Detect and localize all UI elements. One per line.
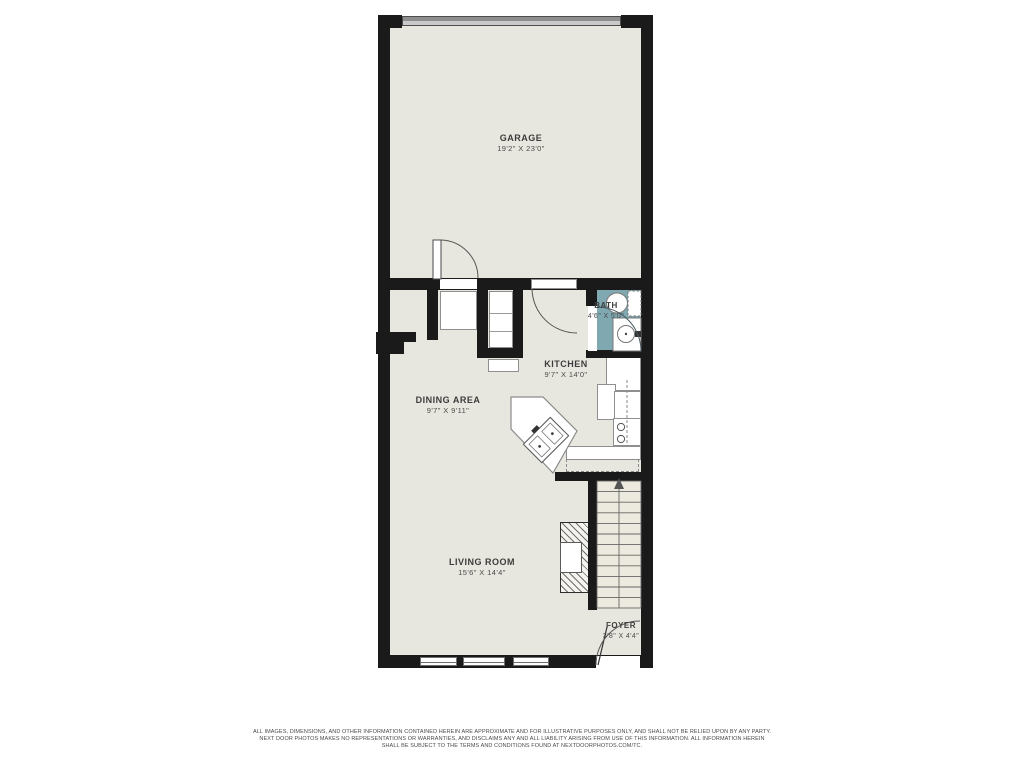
living-room-name: LIVING ROOM xyxy=(449,556,515,568)
disclaimer-line-2: NEXT DOOR PHOTOS MAKES NO REPRESENTATION… xyxy=(0,736,1024,743)
window-icon xyxy=(463,657,505,666)
wall-east xyxy=(641,15,653,668)
foyer-name: FOYER xyxy=(603,620,639,632)
foyer-door-opening xyxy=(596,656,640,668)
upper-cabinet-dashed xyxy=(566,459,639,472)
kitchen-counter-south xyxy=(566,446,641,460)
disclaimer-text: ALL IMAGES, DIMENSIONS, AND OTHER INFORM… xyxy=(0,729,1024,750)
fireplace-box xyxy=(560,542,582,573)
garage-name: GARAGE xyxy=(497,132,545,144)
pantry-closet xyxy=(489,291,513,348)
pantry-shelf-line xyxy=(490,331,512,332)
wall-bath-south xyxy=(586,350,653,358)
bath-label: BATH 4'6" X 5'0" xyxy=(588,300,624,322)
living-room-label: LIVING ROOM 15'6" X 14'4" xyxy=(449,556,515,578)
wall-pantry-west xyxy=(477,288,488,350)
window-icon xyxy=(420,657,457,666)
kitchen-cabinet xyxy=(488,359,519,372)
wall-kitchen-south xyxy=(555,472,653,481)
floor-plan-page: GARAGE 19'2" X 23'0" DINING AREA 9'7" X … xyxy=(0,0,1024,768)
kitchen-counter-east xyxy=(614,391,641,419)
foyer-dims: 3'8" X 4'4" xyxy=(603,632,639,642)
wall-vestibule-west xyxy=(427,288,438,340)
disclaimer-line-1: ALL IMAGES, DIMENSIONS, AND OTHER INFORM… xyxy=(0,729,1024,736)
entry-landing-closet xyxy=(440,291,477,330)
garage-label: GARAGE 19'2" X 23'0" xyxy=(497,132,545,154)
foyer-label: FOYER 3'8" X 4'4" xyxy=(603,620,639,642)
kitchen-label: KITCHEN 9'7" X 14'0" xyxy=(544,358,588,380)
kitchen-name: KITCHEN xyxy=(544,358,588,370)
pantry-shelf-line xyxy=(490,313,512,314)
wall-stairs-west xyxy=(588,481,597,610)
bath-dims: 4'6" X 5'0" xyxy=(588,312,624,322)
kitchen-dims: 9'7" X 14'0" xyxy=(544,370,588,380)
dining-name: DINING AREA xyxy=(416,394,481,406)
wall-closet-south xyxy=(390,332,416,342)
bath-name: BATH xyxy=(588,300,624,312)
range-icon xyxy=(613,418,641,446)
dining-dims: 9'7" X 9'11" xyxy=(416,406,481,416)
wall-pantry-east xyxy=(513,288,523,350)
dining-label: DINING AREA 9'7" X 9'11" xyxy=(416,394,481,416)
garage-door-opening xyxy=(440,279,477,289)
window-icon xyxy=(513,657,549,666)
kitchen-door-opening xyxy=(531,279,577,289)
fireplace xyxy=(560,522,590,593)
garage-door xyxy=(402,16,621,26)
living-room-dims: 15'6" X 14'4" xyxy=(449,568,515,578)
garage-dims: 19'2" X 23'0" xyxy=(497,144,545,154)
disclaimer-line-3: SHALL BE SUBJECT TO THE TERMS AND CONDIT… xyxy=(0,743,1024,750)
wall-pantry-south xyxy=(477,348,523,358)
